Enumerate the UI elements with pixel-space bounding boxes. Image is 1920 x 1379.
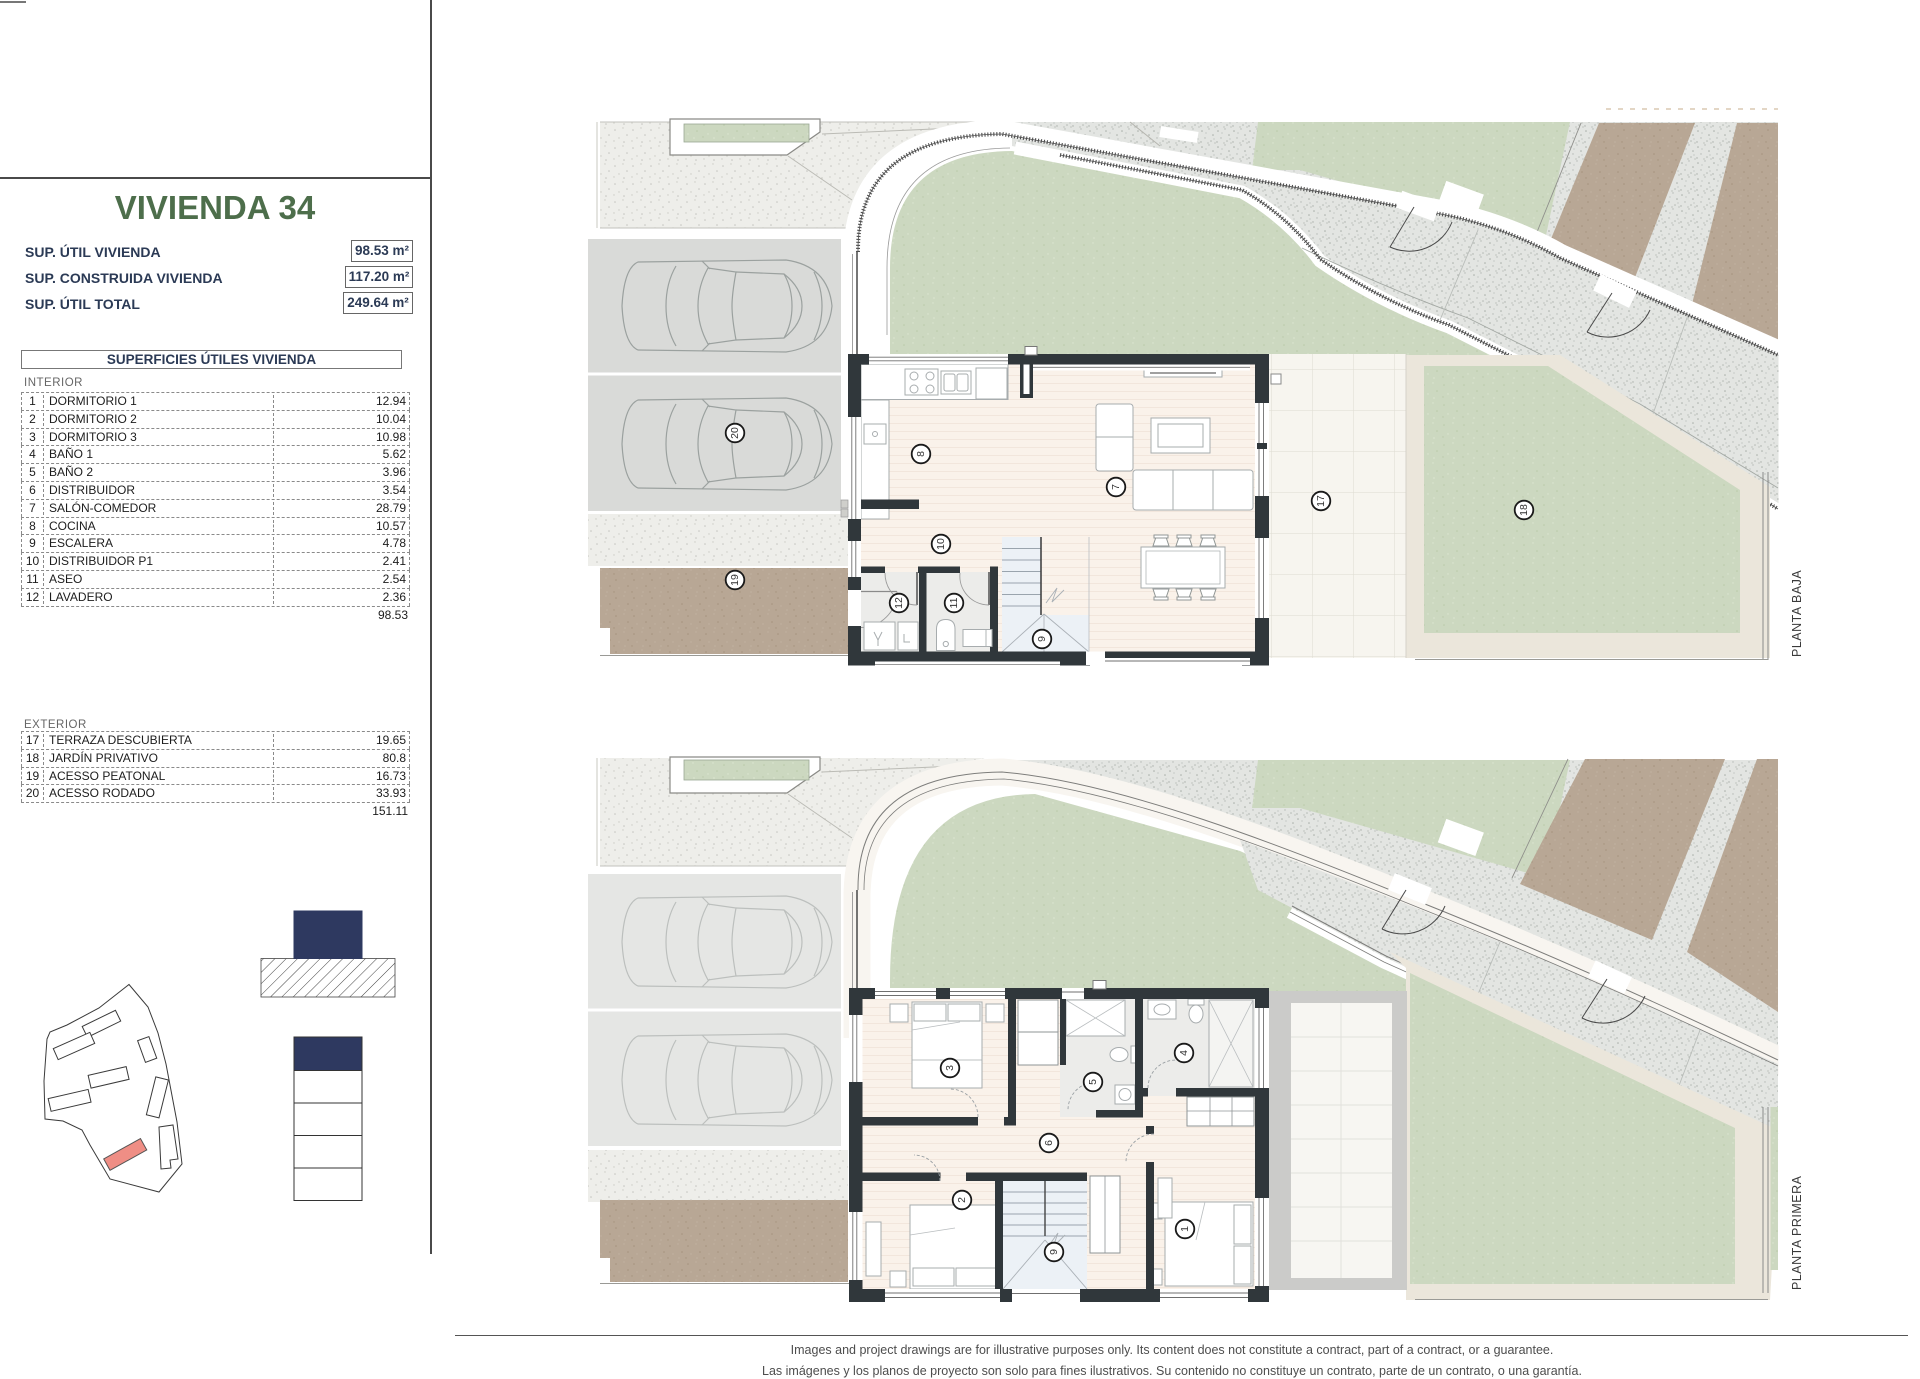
svg-text:5: 5: [1087, 1079, 1099, 1085]
svg-text:8: 8: [915, 451, 927, 457]
svg-text:17: 17: [1315, 495, 1327, 507]
svg-text:19: 19: [729, 574, 741, 586]
svg-text:7: 7: [1110, 484, 1122, 490]
svg-text:12: 12: [893, 597, 905, 609]
svg-text:6: 6: [1043, 1140, 1055, 1146]
svg-text:11: 11: [948, 597, 960, 608]
svg-text:1: 1: [1179, 1226, 1191, 1232]
svg-text:3: 3: [944, 1065, 956, 1071]
svg-text:4: 4: [1178, 1050, 1190, 1056]
svg-text:9: 9: [1036, 636, 1048, 642]
svg-text:2: 2: [956, 1197, 968, 1203]
svg-text:PLANTA BAJA: PLANTA BAJA: [1790, 570, 1804, 657]
svg-text:20: 20: [729, 427, 741, 439]
svg-text:9: 9: [1048, 1249, 1060, 1255]
svg-text:18: 18: [1518, 504, 1530, 516]
svg-text:10: 10: [935, 538, 947, 550]
svg-text:PLANTA PRIMERA: PLANTA PRIMERA: [1790, 1175, 1804, 1290]
